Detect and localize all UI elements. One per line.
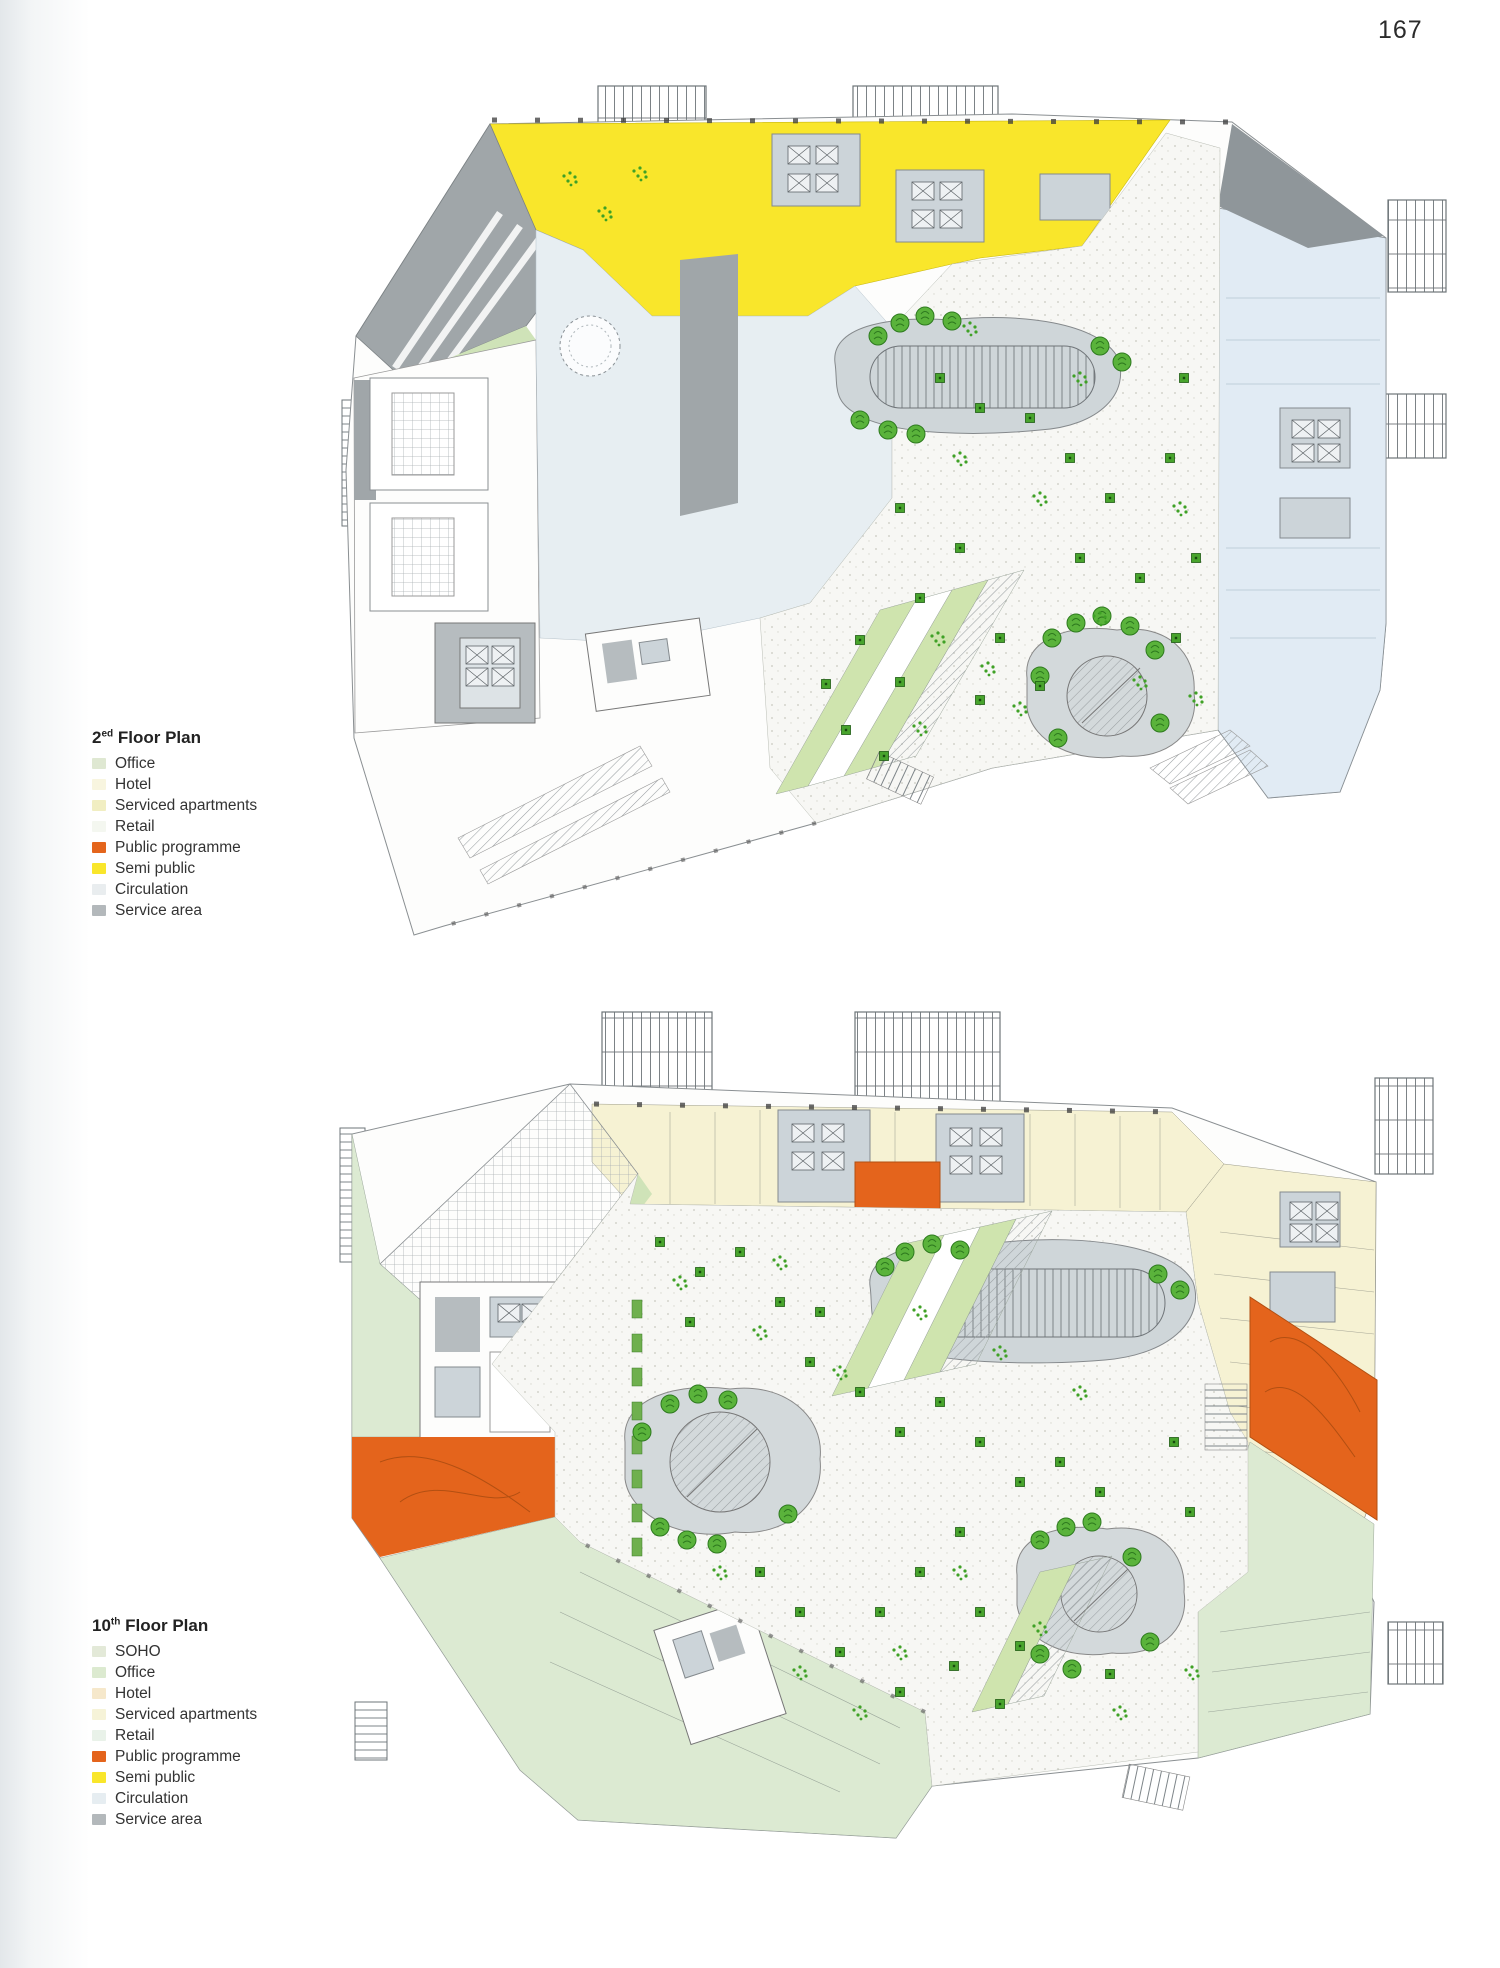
legend-row: Public programme <box>92 837 257 858</box>
legend-row: Circulation <box>92 879 257 900</box>
legend-label: Circulation <box>115 1788 188 1809</box>
legend-row: Serviced apartments <box>92 1704 257 1725</box>
legend-row: Office <box>92 1662 257 1683</box>
public-programme-block-top <box>855 1162 940 1212</box>
legend-label: Office <box>115 1662 155 1683</box>
floor-plan-10-drawing <box>340 1012 1460 1862</box>
legend-swatch <box>92 1667 106 1678</box>
legend-10th-floor-title: 10th Floor Plan <box>92 1616 257 1636</box>
legend-swatch <box>92 1793 106 1804</box>
legend-swatch <box>92 884 106 895</box>
legend-swatch <box>92 821 106 832</box>
legend-swatch <box>92 1730 106 1741</box>
legend-row: Serviced apartments <box>92 795 257 816</box>
legend-swatch <box>92 1646 106 1657</box>
legend-label: Serviced apartments <box>115 1704 257 1725</box>
floor-plan-2-svg <box>340 78 1460 948</box>
legend-row: Retail <box>92 816 257 837</box>
legend-swatch <box>92 863 106 874</box>
legend-swatch <box>92 800 106 811</box>
legend-row: Circulation <box>92 1788 257 1809</box>
legend-swatch <box>92 1751 106 1762</box>
left-wing <box>354 340 540 733</box>
top-band <box>592 1104 1224 1212</box>
legend-row: Office <box>92 753 257 774</box>
floor-plan-10-svg <box>340 1012 1460 1862</box>
legend-label: Public programme <box>115 837 241 858</box>
book-page: { "page": { "number": "167" }, "plan1": … <box>0 0 1500 1968</box>
legend-swatch <box>92 1709 106 1720</box>
legend-label: Office <box>115 753 155 774</box>
legend-row: Retail <box>92 1725 257 1746</box>
floor-plan-2-drawing <box>340 78 1460 948</box>
legend-label: Semi public <box>115 858 195 879</box>
legend-swatch <box>92 1772 106 1783</box>
legend-row: Hotel <box>92 774 257 795</box>
legend-swatch <box>92 1814 106 1825</box>
legend-row: Semi public <box>92 1767 257 1788</box>
pavilion <box>585 618 710 711</box>
legend-label: Retail <box>115 1725 155 1746</box>
legend-label: Circulation <box>115 879 188 900</box>
legend-row: Service area <box>92 900 257 921</box>
legend-label: Retail <box>115 816 155 837</box>
page-binding-shadow <box>0 0 90 1968</box>
legend-label: SOHO <box>115 1641 161 1662</box>
legend-swatch <box>92 905 106 916</box>
legend-swatch <box>92 779 106 790</box>
legend-label: Service area <box>115 900 202 921</box>
legend-row: SOHO <box>92 1641 257 1662</box>
legend-label: Hotel <box>115 1683 151 1704</box>
legend-swatch <box>92 758 106 769</box>
legend-2nd-floor: 2ed Floor Plan Office Hotel Serviced apa… <box>92 728 257 921</box>
page-number: 167 <box>1378 16 1423 45</box>
legend-row: Hotel <box>92 1683 257 1704</box>
legend-label: Service area <box>115 1809 202 1830</box>
legend-label: Serviced apartments <box>115 795 257 816</box>
legend-row: Semi public <box>92 858 257 879</box>
legend-row: Service area <box>92 1809 257 1830</box>
legend-10th-floor: 10th Floor Plan SOHO Office Hotel Servic… <box>92 1616 257 1830</box>
legend-swatch <box>92 1688 106 1699</box>
legend-2nd-floor-title: 2ed Floor Plan <box>92 728 257 748</box>
legend-label: Hotel <box>115 774 151 795</box>
legend-label: Semi public <box>115 1767 195 1788</box>
legend-swatch <box>92 842 106 853</box>
legend-row: Public programme <box>92 1746 257 1767</box>
right-band <box>1218 124 1386 798</box>
legend-label: Public programme <box>115 1746 241 1767</box>
